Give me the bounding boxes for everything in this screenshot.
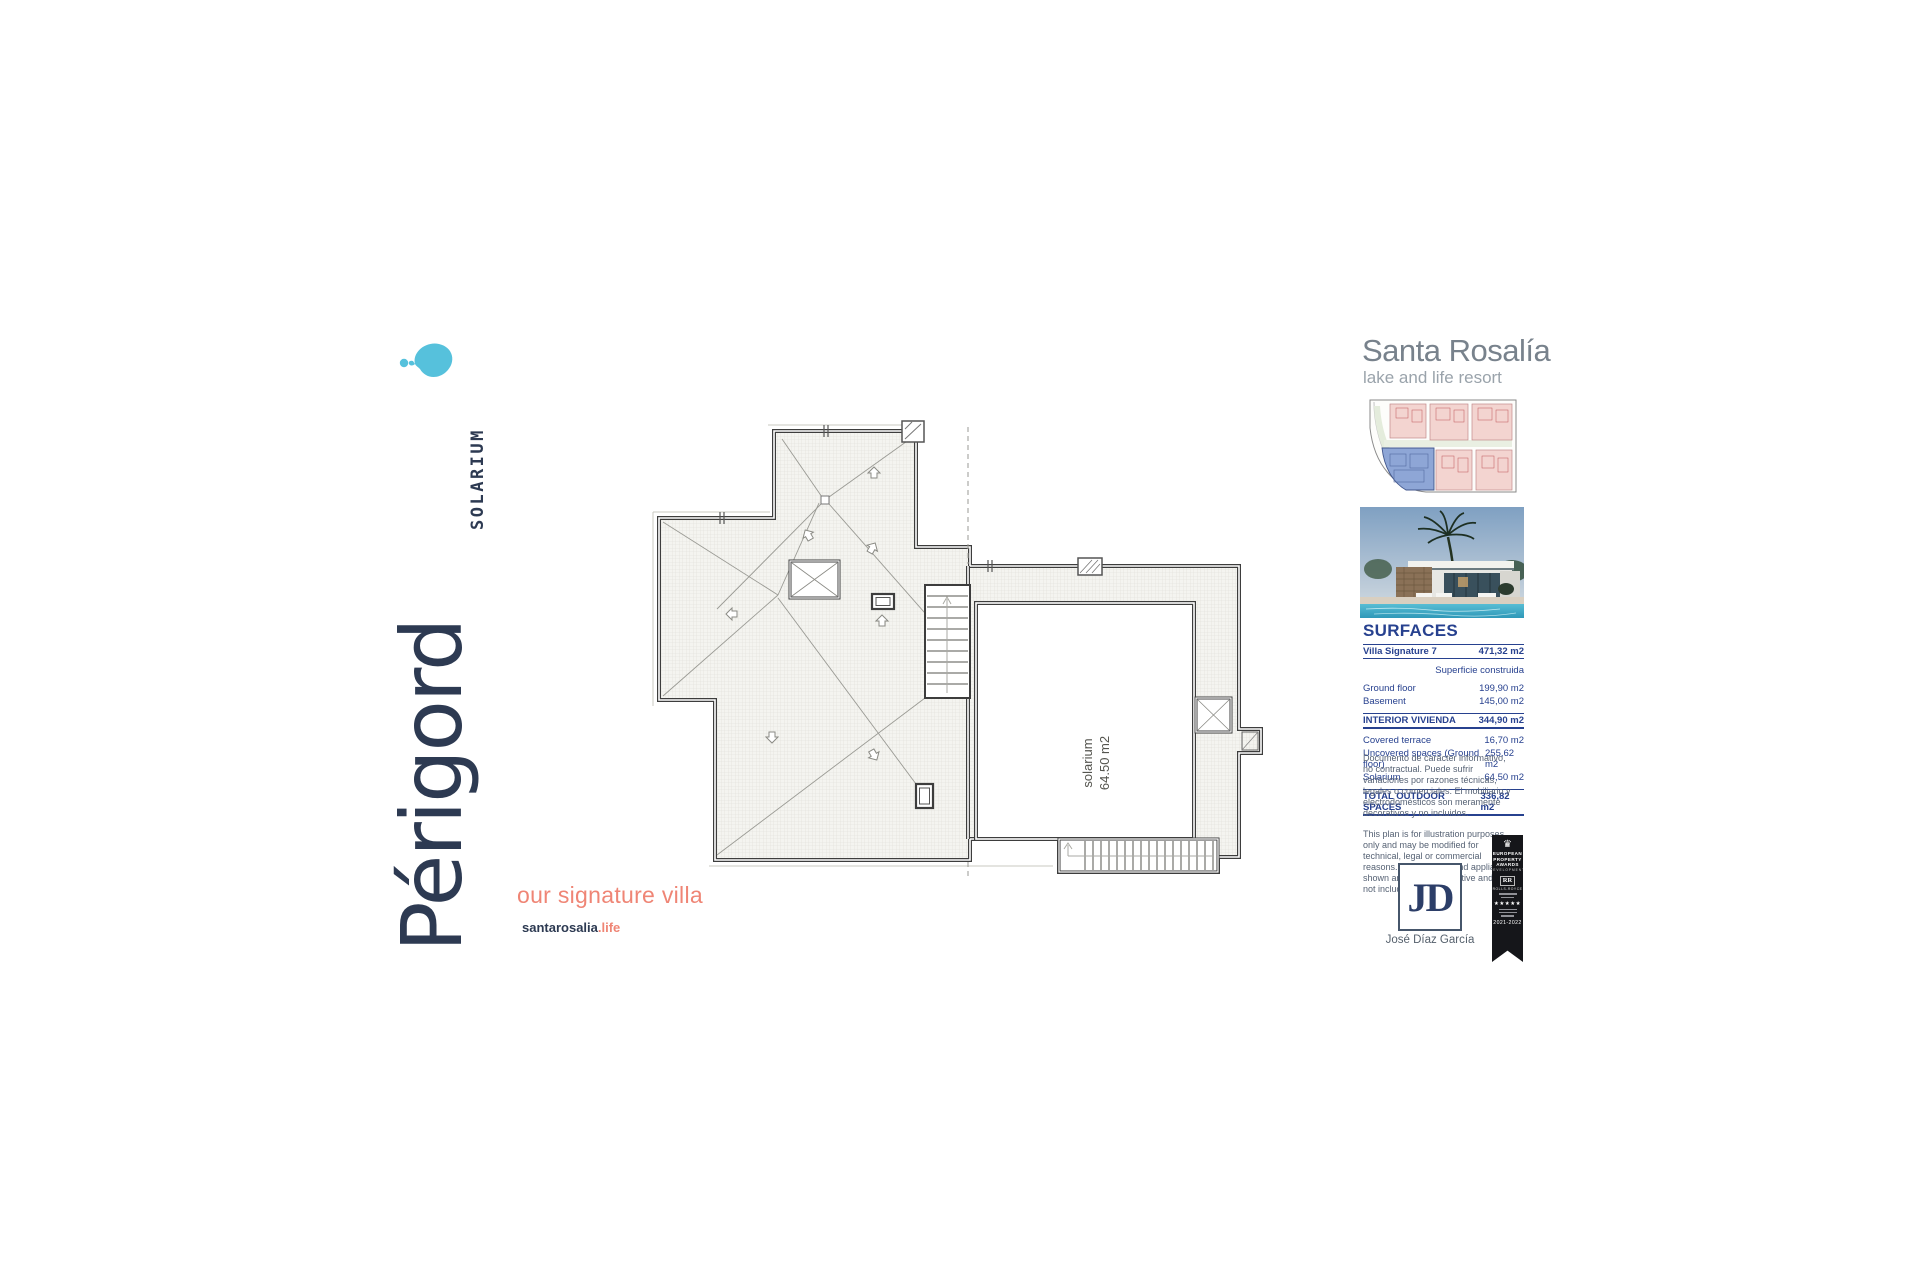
- skylight-right: [1196, 698, 1231, 732]
- sponsor-name: ROLLS-ROYCE: [1493, 887, 1523, 891]
- resort-subtitle: lake and life resort: [1363, 368, 1502, 388]
- table-row-basement: Basement145,00 m2: [1363, 695, 1524, 708]
- solarium-floor: [976, 603, 1194, 839]
- parapet-vent: [1078, 558, 1102, 575]
- table-row-interior: INTERIOR VIVIENDA344,90 m2: [1363, 713, 1524, 729]
- website-tld: .life: [598, 920, 620, 935]
- award-years: 2021-2022: [1493, 920, 1521, 926]
- award-crest-icon: ♛: [1503, 839, 1512, 850]
- table-row-villa: Villa Signature 7471,32 m2: [1363, 644, 1524, 659]
- exterior-stairs: [1059, 839, 1218, 872]
- table-row-covered-terrace: Covered terrace16,70 m2: [1363, 734, 1524, 747]
- website-base: santarosalia: [522, 920, 598, 935]
- floor-plan-drawing: solarium 64.50 m2: [630, 415, 1290, 880]
- disclaimer-es: Documento de carácter informativo, no co…: [1363, 753, 1517, 819]
- table-subheader: Superficie construida: [1363, 664, 1524, 677]
- plan-level-label: SOLARIUM: [468, 428, 488, 530]
- table-row-ground-floor: Ground floor199,90 m2: [1363, 682, 1524, 695]
- award-category: DEVELOPMENT: [1490, 868, 1525, 873]
- award-stars: ★★★★★: [1494, 901, 1521, 907]
- surfaces-title: SURFACES: [1363, 621, 1458, 641]
- tagline: our signature villa: [517, 882, 703, 909]
- villa-photo-image: [1360, 507, 1524, 618]
- resort-name: Santa Rosalía: [1362, 333, 1550, 369]
- architect-logo: JD: [1398, 863, 1462, 931]
- corner-detail-box: [902, 421, 924, 442]
- skylight-small: [916, 784, 933, 808]
- interior-stairs: [925, 585, 970, 698]
- svg-text:64.50 m2: 64.50 m2: [1097, 736, 1112, 790]
- skylight-large: [790, 561, 839, 598]
- ridge-junction: [821, 496, 829, 504]
- architect-initials: JD: [1408, 874, 1453, 921]
- sponsor-monogram: RR: [1500, 876, 1515, 886]
- award-ribbon: ♛ EUROPEAN PROPERTY AWARDS DEVELOPMENT R…: [1492, 835, 1523, 962]
- villa-name: Périgord: [383, 620, 481, 952]
- resort-logo-icon: [393, 336, 465, 390]
- site-masterplan-image: [1360, 392, 1524, 498]
- architect-name: José Díaz García: [1384, 934, 1476, 946]
- roof-vent: [872, 594, 894, 609]
- brochure-page: { "branding": { "villa_name": "Périgord"…: [0, 0, 1920, 1280]
- svg-text:solarium: solarium: [1080, 738, 1095, 787]
- website-url: santarosalia.life: [522, 920, 620, 935]
